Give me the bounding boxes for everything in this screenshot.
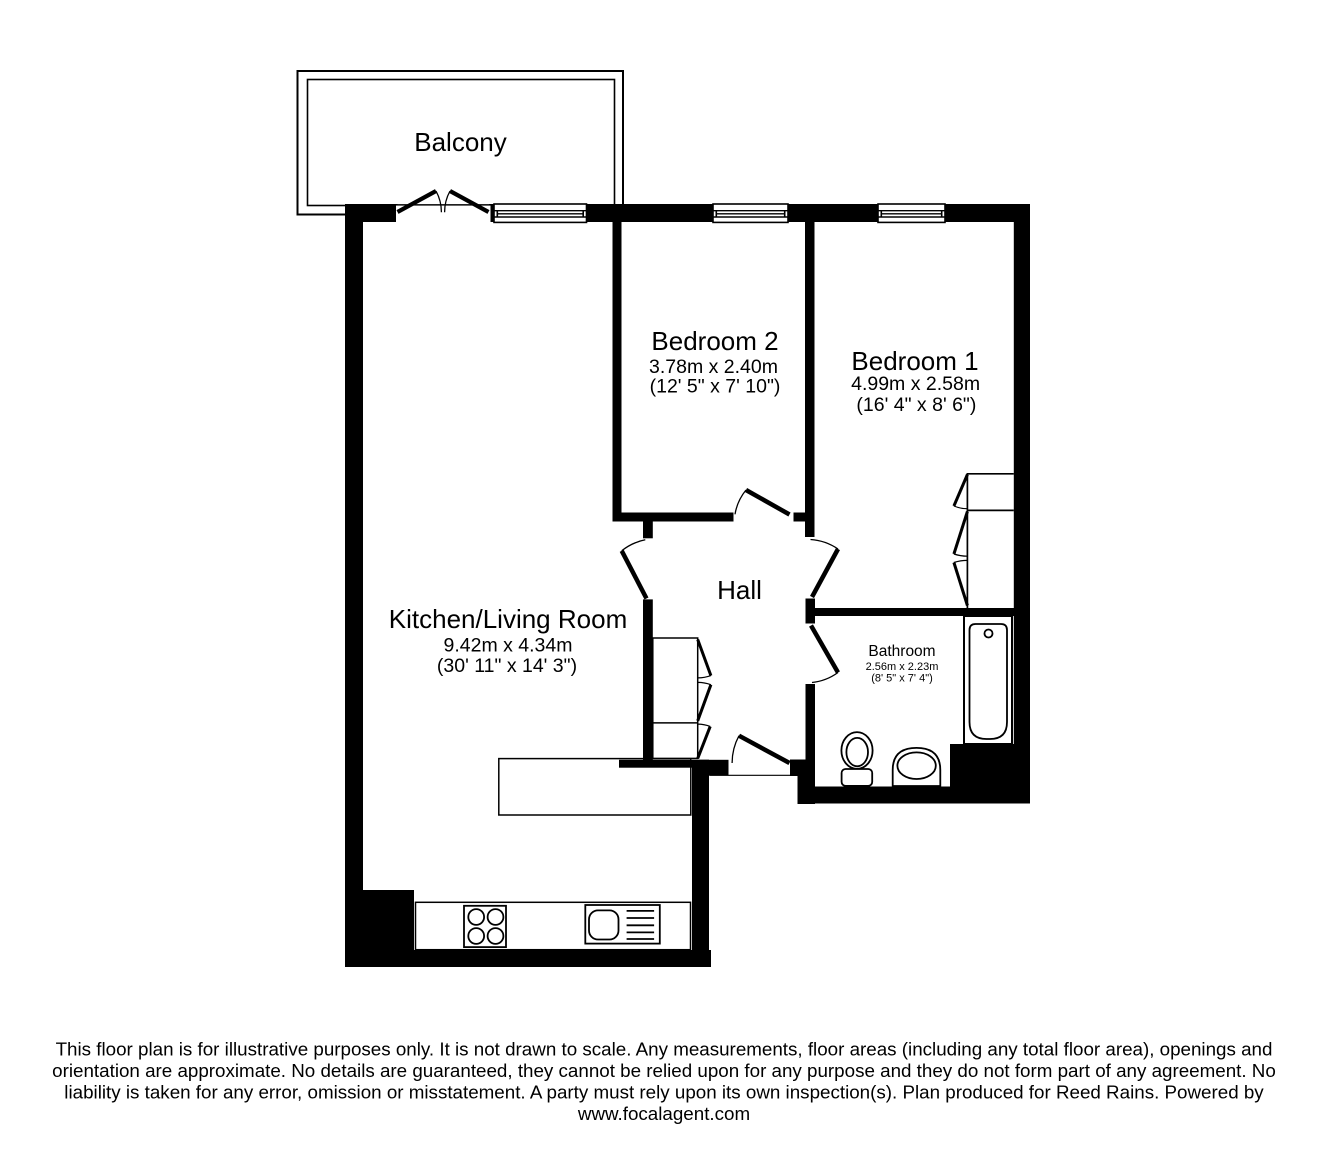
- svg-text:This floor plan is for illustr: This floor plan is for illustrative purp…: [56, 1039, 1273, 1060]
- svg-text:2.56m x 2.23m: 2.56m x 2.23m: [866, 661, 939, 673]
- svg-text:4.99m x 2.58m: 4.99m x 2.58m: [851, 373, 980, 395]
- svg-text:www.focalagent.com: www.focalagent.com: [577, 1103, 750, 1124]
- svg-text:(12' 5" x 7' 10"): (12' 5" x 7' 10"): [650, 376, 781, 398]
- svg-text:Hall: Hall: [717, 575, 762, 605]
- svg-text:liability is taken for any err: liability is taken for any error, omissi…: [64, 1082, 1264, 1103]
- svg-text:Bedroom 2: Bedroom 2: [651, 326, 778, 356]
- svg-text:Kitchen/Living Room: Kitchen/Living Room: [389, 604, 627, 634]
- svg-text:Bedroom 1: Bedroom 1: [851, 346, 978, 376]
- svg-text:Bathroom: Bathroom: [868, 643, 935, 660]
- svg-text:(30' 11" x 14' 3"): (30' 11" x 14' 3"): [437, 655, 577, 677]
- svg-text:(8' 5" x 7' 4"): (8' 5" x 7' 4"): [871, 673, 933, 685]
- svg-text:9.42m x 4.34m: 9.42m x 4.34m: [444, 635, 573, 657]
- svg-text:Balcony: Balcony: [414, 127, 507, 157]
- svg-text:(16' 4" x 8' 6"): (16' 4" x 8' 6"): [856, 394, 976, 416]
- svg-text:orientation are approximate. N: orientation are approximate. No details …: [52, 1060, 1276, 1081]
